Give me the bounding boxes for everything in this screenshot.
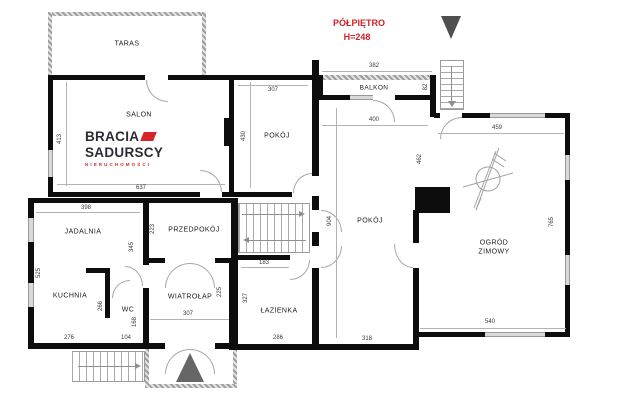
wall [143,288,149,349]
wall [28,343,147,349]
dim-salon-h: 413 [57,134,63,144]
door-arc [146,80,168,102]
dim-wiatrolap-w: 307 [183,311,193,317]
dim-przedpokoj-side: 223 [150,224,156,234]
logo-flag-icon [140,132,157,141]
window [28,283,34,307]
floor-title: PÓŁPIĘTRO [333,18,385,28]
logo-line2: SADURSCY [85,146,181,160]
room-label-wc: WC [122,307,134,314]
dimension-line [438,133,564,134]
stair-arrowhead [135,363,141,369]
wall [48,75,53,196]
dim-salon-w: 637 [136,185,146,191]
room-label-kuchnia: KUCHNIA [53,293,87,300]
floor-height-note: H=248 [344,32,371,42]
door-arc [165,263,190,288]
wall [222,192,292,197]
dim-jadalnia-h: 525 [36,268,42,278]
hatched-wall [202,12,206,76]
door-arc [112,280,130,298]
wall [565,113,570,337]
window [565,255,570,285]
dim-pokoj-b-w-bottom: 318 [362,336,372,342]
wall [430,75,436,117]
dim-jadalnia-inner: 345 [129,242,135,252]
stair-arrowhead [243,237,249,243]
dim-kuchnia-w: 276 [64,335,74,341]
dim-ogrod-w-bottom: 540 [485,319,495,325]
dimension-line [238,85,308,86]
agency-logo: BRACIA SADURSCY NIERUCHOMOŚCI [85,128,181,167]
stair-arrow [242,214,300,215]
wall [413,210,419,243]
door-arc [200,170,222,192]
dim-lazienka-h: 327 [243,293,249,303]
entrance-triangle-icon [176,353,204,382]
wall [48,192,200,197]
logo-line3: NIERUCHOMOŚCI [85,162,181,167]
dimension-line [420,328,566,329]
dim-pokoj-b-w: 400 [369,117,379,123]
hatched-wall [48,12,206,16]
room-label-ogrod-zimowy: OGRÓD ZIMOWY [468,239,520,257]
north-triangle-icon [441,16,461,39]
wall [147,258,165,263]
hatched-wall [145,349,149,388]
stair-arrow [78,366,136,367]
dim-ogrod-h: 765 [549,217,555,227]
window [490,113,545,118]
wall [312,268,319,345]
dim-pokoj-a-h: 430 [241,131,247,141]
wall [395,95,430,100]
stair-arrowhead [448,101,456,107]
room-label-pokoj-a: POKÓJ [264,133,290,140]
dimension-line [250,82,251,188]
hatched-wall [318,75,436,80]
wall [322,95,350,100]
stair-arrowhead [299,211,305,217]
dim-pokoj-b-h-upper: 462 [417,154,423,164]
room-label-pokoj-b: POKÓJ [357,218,383,225]
door-arc [190,263,215,288]
wall [312,344,419,350]
door-arc [290,260,310,280]
wall [168,75,234,80]
dim-jadalnia-w: 398 [81,205,91,211]
hatched-wall [145,384,237,388]
wall [105,268,110,318]
hatched-wall [48,12,52,76]
wall [434,113,440,118]
room-label-jadalnia: JADALNIA [65,229,102,236]
door-arc [321,246,342,268]
room-label-salon: SALON [126,112,152,119]
room-label-wiatrolap: WIATROŁAP [168,294,212,301]
door-arc [293,173,312,193]
wall [229,258,238,350]
dim-lazienka-w-top: 183 [259,260,269,266]
window [565,155,570,180]
dim-wc-w: 104 [121,335,131,341]
logo-line1: BRACIA [85,130,139,144]
dimension-line [336,108,337,338]
dim-balkon-h: 82 [423,84,429,91]
dim-kuchnia-h: 266 [98,301,104,311]
stair-arrow [248,240,306,241]
wall [234,75,314,80]
hatched-wall [233,349,237,388]
room-label-balkon: BALKON [360,85,389,92]
compass-arrow-icon [461,144,515,214]
dimension-line [241,267,289,268]
wall [312,196,319,210]
door-arc [394,244,413,268]
window [48,150,53,177]
dimension-line [36,212,140,213]
dim-wiatrolap-h: 225 [217,287,223,297]
wall [224,118,234,146]
floor-plan: PÓŁPIĘTRO H=248 TARAS SALON BRACIA SADUR… [0,0,620,400]
dimension-line [322,125,428,126]
wall [312,232,319,246]
window [350,95,373,100]
wall [143,203,149,265]
room-label-taras: TARAS [115,41,140,48]
wall [231,198,238,258]
wall [147,343,165,349]
wall [229,344,312,350]
wall [28,198,236,203]
dim-lazienka-w-bottom: 286 [273,335,283,341]
door-arc [440,117,462,139]
wall [48,75,145,80]
dimension-line [322,71,432,72]
dim-wc-h: 168 [132,317,138,327]
dimension-line [66,82,67,186]
room-label-lazienka: ŁAZIENKA [260,308,297,315]
dim-pokoj-b-h: 904 [327,216,333,226]
dim-ogrod-w: 459 [492,125,502,131]
wall [415,187,450,213]
stair-arrow [451,66,452,102]
window [28,218,34,242]
room-label-przedpokoj: PRZEDPOKÓJ [168,227,219,234]
window [485,332,545,337]
dimension-line [150,319,230,320]
dim-pokoj-a-w: 307 [268,87,278,93]
dim-balkon-w: 382 [369,63,379,69]
